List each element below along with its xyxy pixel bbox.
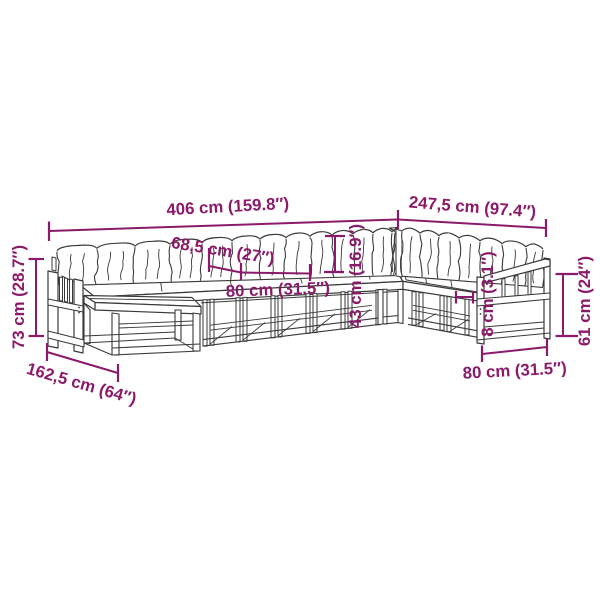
svg-text:80 cm (31.5″): 80 cm (31.5″) [225,278,330,301]
svg-text:43 cm (16.9″): 43 cm (16.9″) [346,224,365,328]
svg-text:8 cm (3.1″): 8 cm (3.1″) [478,251,497,336]
svg-text:61 cm (24″): 61 cm (24″) [575,256,594,346]
svg-text:73 cm (28.7″): 73 cm (28.7″) [9,245,28,349]
